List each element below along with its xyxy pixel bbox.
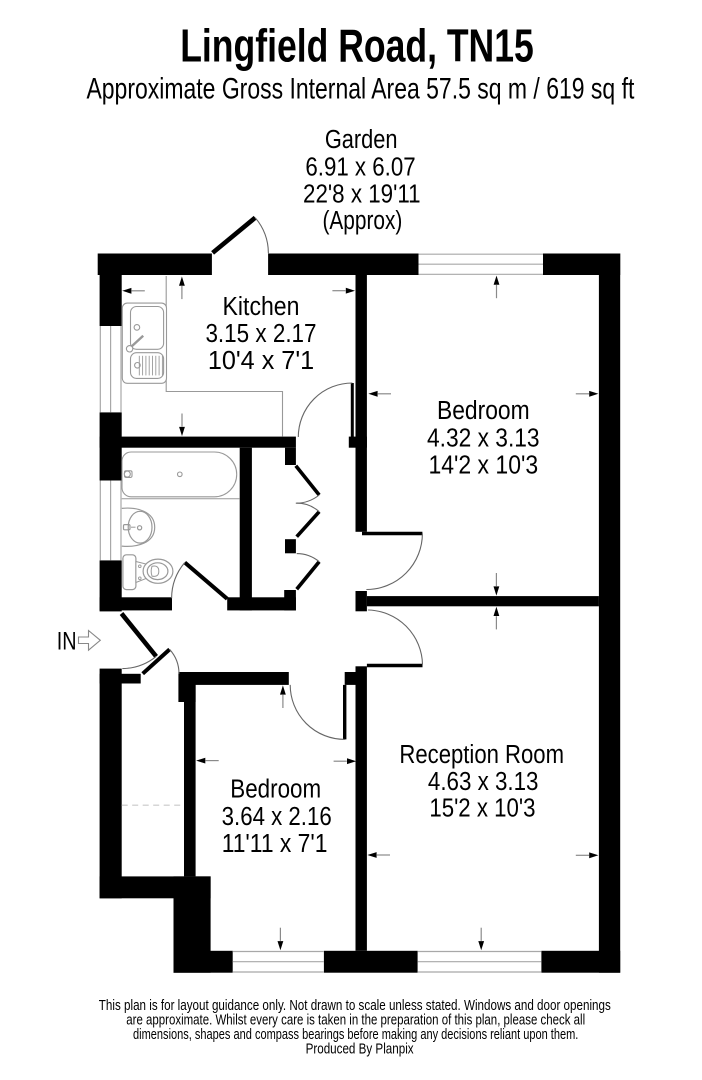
svg-text:Kitchen: Kitchen xyxy=(223,291,300,321)
svg-text:Bedroom: Bedroom xyxy=(230,774,321,804)
svg-text:Produced By Planpix: Produced By Planpix xyxy=(306,1041,414,1058)
svg-text:3.64 x 2.16: 3.64 x 2.16 xyxy=(222,801,332,831)
svg-text:Lingfield Road, TN15: Lingfield Road, TN15 xyxy=(180,20,534,72)
svg-text:3.15 x 2.17: 3.15 x 2.17 xyxy=(205,318,316,348)
svg-text:Approximate Gross Internal Are: Approximate Gross Internal Area 57.5 sq … xyxy=(86,73,634,106)
svg-text:Garden: Garden xyxy=(325,124,398,154)
svg-text:4.63 x 3.13: 4.63 x 3.13 xyxy=(428,766,539,796)
svg-text:IN: IN xyxy=(57,629,77,656)
svg-text:Reception Room: Reception Room xyxy=(399,739,564,769)
svg-text:Bedroom: Bedroom xyxy=(437,395,530,425)
svg-text:6.91 x 6.07: 6.91 x 6.07 xyxy=(305,152,415,182)
svg-text:14'2 x 10'3: 14'2 x 10'3 xyxy=(428,449,538,479)
svg-text:10'4 x 7'1: 10'4 x 7'1 xyxy=(208,345,314,375)
svg-text:(Approx): (Approx) xyxy=(322,205,402,235)
svg-text:15'2 x 10'3: 15'2 x 10'3 xyxy=(429,793,535,823)
svg-text:4.32 x 3.13: 4.32 x 3.13 xyxy=(427,422,540,452)
svg-text:11'11 x 7'1: 11'11 x 7'1 xyxy=(222,828,328,858)
svg-text:22'8 x 19'11: 22'8 x 19'11 xyxy=(303,178,421,208)
